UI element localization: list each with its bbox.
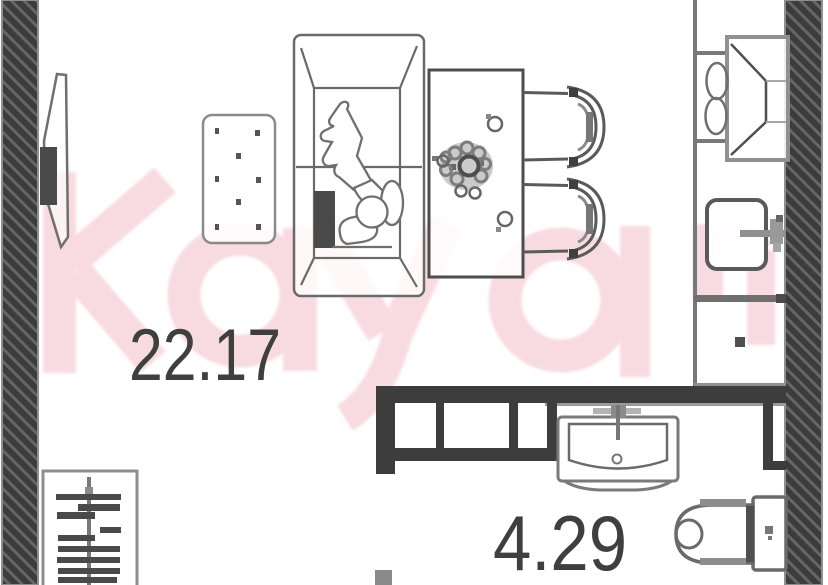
svg-text:22.17: 22.17	[129, 315, 281, 396]
svg-text:4.29: 4.29	[493, 499, 627, 585]
